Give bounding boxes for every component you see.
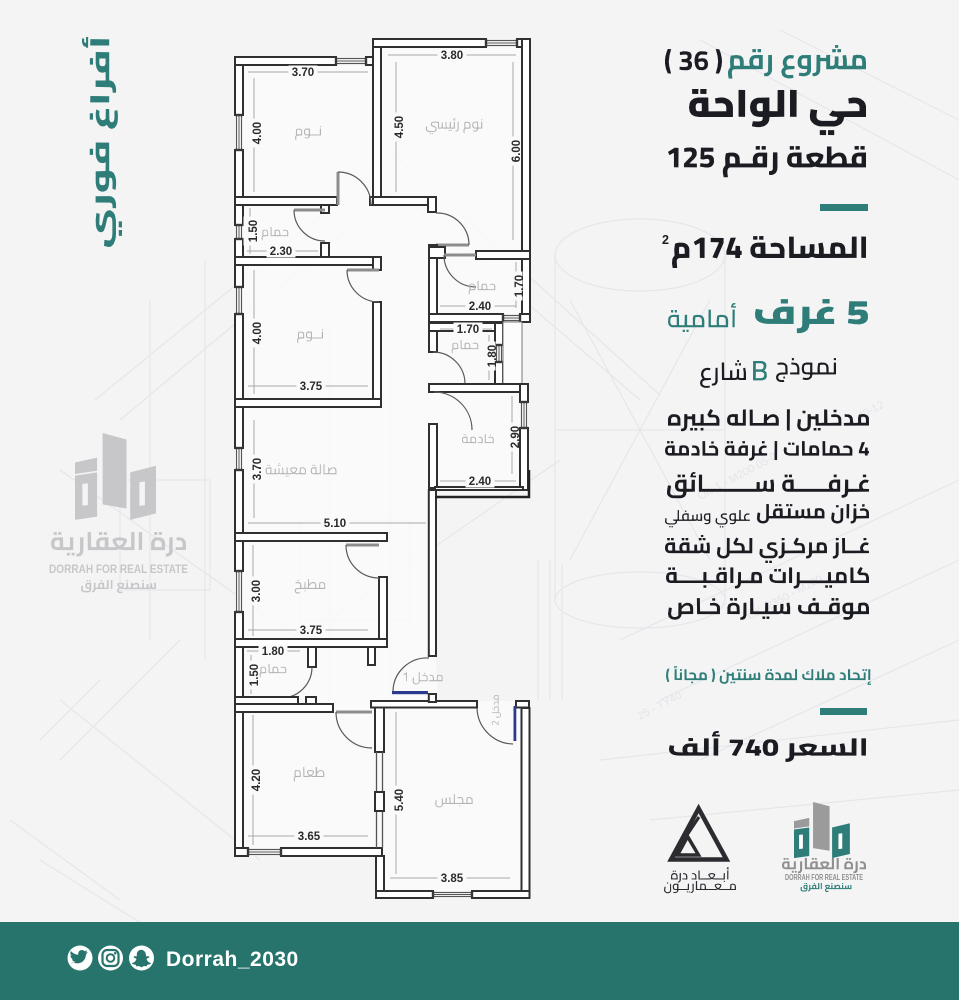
svg-text:1.70: 1.70 — [457, 324, 479, 336]
svg-text:6.00: 6.00 — [511, 140, 523, 162]
svg-text:2.40: 2.40 — [469, 301, 491, 313]
svg-text:2.30: 2.30 — [270, 246, 292, 258]
svg-text:1.70: 1.70 — [514, 275, 526, 297]
svg-text:3.75: 3.75 — [300, 381, 323, 393]
svg-text:5.10: 5.10 — [324, 518, 346, 530]
svg-text:1.80: 1.80 — [262, 646, 284, 658]
svg-text:2.90: 2.90 — [510, 426, 522, 448]
svg-text:3.70: 3.70 — [292, 67, 314, 79]
svg-text:3.00: 3.00 — [251, 580, 263, 602]
svg-text:3.80: 3.80 — [441, 50, 463, 62]
svg-text:4.50: 4.50 — [394, 116, 406, 138]
svg-text:25 - TY40: 25 - TY40 — [636, 689, 684, 722]
svg-text:2: 2 — [662, 233, 669, 247]
svg-text:3.75: 3.75 — [300, 625, 323, 637]
svg-text:3.85: 3.85 — [441, 873, 464, 885]
svg-text:4.20: 4.20 — [251, 769, 263, 791]
svg-text:5.40: 5.40 — [394, 789, 406, 811]
svg-text:DORRAH FOR REAL ESTATE: DORRAH FOR REAL ESTATE — [49, 564, 188, 576]
svg-text:DORRAH FOR REAL ESTATE: DORRAH FOR REAL ESTATE — [785, 873, 863, 882]
svg-text:3.65: 3.65 — [298, 831, 321, 843]
svg-text:1.50: 1.50 — [248, 220, 260, 242]
svg-text:Dorrah_2030: Dorrah_2030 — [166, 948, 299, 971]
svg-text:4.00: 4.00 — [252, 122, 264, 144]
svg-text:1.50: 1.50 — [249, 664, 261, 686]
svg-text:OK-1 - M200 05-0: OK-1 - M200 05-0 — [696, 451, 779, 503]
svg-text:2.40: 2.40 — [469, 476, 491, 488]
svg-text:1.80: 1.80 — [487, 345, 499, 367]
svg-text:4.00: 4.00 — [252, 322, 264, 344]
svg-text:3.70: 3.70 — [252, 458, 264, 480]
